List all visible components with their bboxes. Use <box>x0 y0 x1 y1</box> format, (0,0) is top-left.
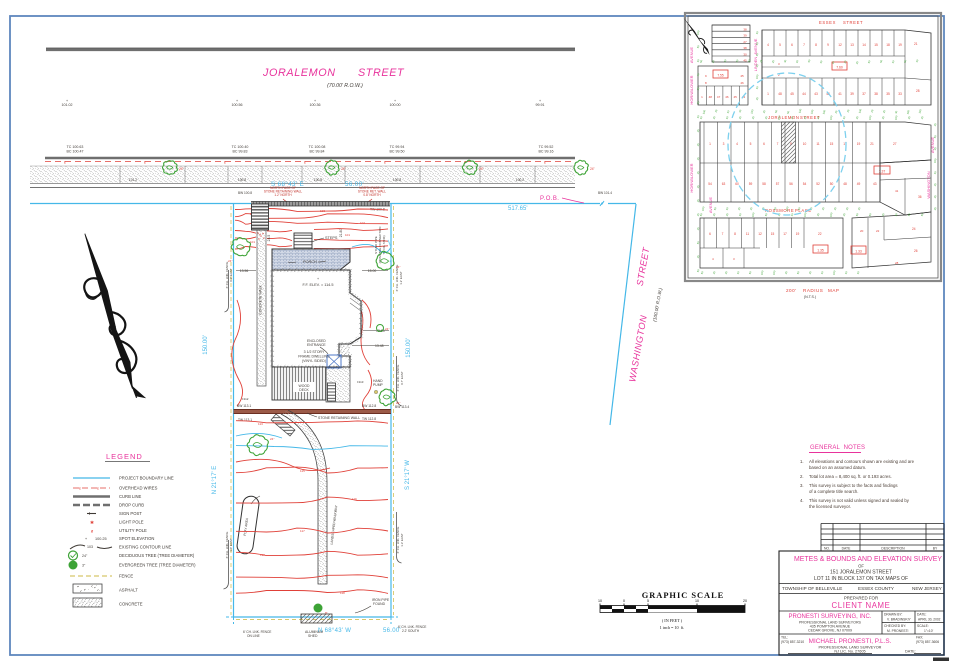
svg-text:HORNBLOWER: HORNBLOWER <box>689 163 694 192</box>
svg-text:BW 113.1: BW 113.1 <box>237 404 251 408</box>
svg-text:AVENUE: AVENUE <box>689 47 694 63</box>
svg-text:59: 59 <box>749 182 753 186</box>
svg-text:ESSEX: ESSEX <box>819 20 836 25</box>
svg-text:(70.00' R.O.W.): (70.00' R.O.W.) <box>327 83 363 89</box>
svg-text:ROSSMORE: ROSSMORE <box>765 208 794 213</box>
svg-text:15: 15 <box>830 142 834 146</box>
svg-text:22: 22 <box>818 232 822 236</box>
svg-text:4: 4 <box>767 43 769 47</box>
svg-text:100.00: 100.00 <box>390 103 401 107</box>
svg-text:46: 46 <box>740 81 744 85</box>
svg-text:PROJECT BOUNDARY LINE: PROJECT BOUNDARY LINE <box>119 476 174 481</box>
svg-text:52: 52 <box>816 182 820 186</box>
svg-text:116: 116 <box>352 497 357 501</box>
svg-text:41: 41 <box>838 92 842 96</box>
svg-text:27: 27 <box>743 40 747 44</box>
svg-text:100.56: 100.56 <box>232 103 243 107</box>
svg-text:LOT 11 IN BLOCK 137 ON TAX MAP: LOT 11 IN BLOCK 137 ON TAX MAPS OF <box>814 576 908 582</box>
svg-text:6: 6 <box>709 232 711 236</box>
svg-text:PUMP: PUMP <box>373 383 384 387</box>
svg-text:57: 57 <box>776 182 780 186</box>
svg-text:100.2: 100.2 <box>516 178 524 182</box>
svg-text:BY: BY <box>933 547 938 551</box>
svg-text:1.35: 1.35 <box>817 249 824 253</box>
svg-text:DRAWN BY:: DRAWN BY: <box>884 613 902 617</box>
svg-text:This survey is subject to the: This survey is subject to the facts and … <box>809 483 898 488</box>
svg-text:1.3' EAST: 1.3' EAST <box>400 533 404 547</box>
svg-text:19: 19 <box>898 43 902 47</box>
svg-text:19: 19 <box>796 232 800 236</box>
svg-text:PREPARED FOR: PREPARED FOR <box>844 596 878 601</box>
svg-text:24": 24" <box>590 167 595 171</box>
svg-text:48: 48 <box>778 92 782 96</box>
svg-text:24": 24" <box>385 327 389 331</box>
svg-text:ENTRANCE: ENTRANCE <box>307 343 326 347</box>
svg-text:63: 63 <box>722 182 726 186</box>
svg-text:5: 5 <box>647 599 649 603</box>
svg-text:5: 5 <box>779 43 781 47</box>
svg-text:18: 18 <box>886 43 890 47</box>
svg-text:8: 8 <box>734 232 736 236</box>
svg-text:E: E <box>304 161 306 165</box>
svg-text:S 21°17' W: S 21°17' W <box>405 460 411 490</box>
svg-text:100.8: 100.8 <box>393 178 401 182</box>
svg-text:SIGN POST: SIGN POST <box>119 511 142 516</box>
svg-text:WASHINGTON: WASHINGTON <box>926 171 931 198</box>
svg-text:of a complete title search.: of a complete title search. <box>809 489 859 494</box>
svg-text:GENERAL NOTES: GENERAL NOTES <box>810 445 865 451</box>
svg-text:56: 56 <box>789 182 793 186</box>
svg-text:·: · <box>84 588 85 593</box>
svg-text:BC 99.83: BC 99.83 <box>233 150 248 154</box>
svg-text:·: · <box>99 588 100 593</box>
svg-text:100.8: 100.8 <box>314 178 322 182</box>
svg-text:CEDAR GROVE, NJ 07009: CEDAR GROVE, NJ 07009 <box>808 629 852 633</box>
svg-text:BW 100.8: BW 100.8 <box>238 191 252 195</box>
svg-text:P.O.B.: P.O.B. <box>540 196 559 202</box>
svg-text:6: 6 <box>763 142 765 146</box>
svg-text:( IN FEET ): ( IN FEET ) <box>662 618 683 623</box>
svg-text:1: 1 <box>767 92 769 96</box>
svg-text:BW 112.8: BW 112.8 <box>362 404 376 408</box>
svg-text:115: 115 <box>300 469 305 473</box>
svg-text:NEW JERSEY: NEW JERSEY <box>912 586 942 591</box>
svg-text:JORALEMON: JORALEMON <box>262 67 336 79</box>
svg-text:CONCRETE WALK: CONCRETE WALK <box>259 285 263 315</box>
svg-text:30: 30 <box>743 52 747 56</box>
svg-text:15: 15 <box>874 43 878 47</box>
svg-text:E: E <box>144 161 146 165</box>
svg-text:·: · <box>88 587 89 592</box>
svg-text:BC 99.16: BC 99.16 <box>539 150 554 154</box>
svg-text:TC 99.94: TC 99.94 <box>390 145 405 149</box>
svg-text:TC 100.40: TC 100.40 <box>232 145 249 149</box>
svg-text:4.: 4. <box>800 498 804 503</box>
svg-text:N 21°17' E: N 21°17' E <box>212 466 218 495</box>
svg-text:TW 112.8: TW 112.8 <box>362 417 376 421</box>
svg-text:22: 22 <box>876 229 880 233</box>
svg-text:100.36: 100.36 <box>310 103 321 107</box>
svg-text:58: 58 <box>762 182 766 186</box>
svg-text:150.00': 150.00' <box>406 338 412 358</box>
svg-text:TC 99.52: TC 99.52 <box>539 145 554 149</box>
svg-text:2.2' SOUTH: 2.2' SOUTH <box>402 629 420 633</box>
svg-text:DATE: DATE <box>842 547 852 551</box>
svg-text:28: 28 <box>916 89 920 93</box>
svg-text:LEGEND: LEGEND <box>106 452 143 461</box>
svg-text:DESCRIPTION: DESCRIPTION <box>881 547 905 551</box>
svg-text:24": 24" <box>179 167 184 171</box>
svg-text:NO.: NO. <box>824 547 830 551</box>
svg-text:24": 24" <box>396 265 400 269</box>
svg-text:DATE:: DATE: <box>905 650 916 654</box>
svg-text:36: 36 <box>918 195 922 199</box>
svg-text:EVERGREEN TREE (TREE DIAMETER): EVERGREEN TREE (TREE DIAMETER) <box>119 563 196 568</box>
svg-text:FRAME DWELLING: FRAME DWELLING <box>298 355 330 359</box>
svg-text:E: E <box>224 161 226 165</box>
svg-text:All elevations and contours sh: All elevations and contours shown are ex… <box>809 459 915 464</box>
svg-text:STEPS: STEPS <box>325 236 338 240</box>
svg-text:SPOT ELEVATION: SPOT ELEVATION <box>119 536 154 541</box>
svg-text:10: 10 <box>695 599 699 603</box>
svg-text:101: 101 <box>345 233 350 237</box>
svg-text:3 1/2 STORY: 3 1/2 STORY <box>304 350 325 354</box>
svg-text:113: 113 <box>258 422 263 426</box>
svg-text:3: 3 <box>723 142 725 146</box>
svg-text:METES & BOUNDS AND ELEVATION S: METES & BOUNDS AND ELEVATION SURVEY <box>794 556 942 563</box>
svg-text:6: 6 <box>791 43 793 47</box>
svg-text:STONE RETAINING WALL: STONE RETAINING WALL <box>318 416 360 420</box>
svg-text:101.02: 101.02 <box>62 103 73 107</box>
svg-text:SCALE:: SCALE: <box>917 624 929 628</box>
svg-text:(973) 857-3210: (973) 857-3210 <box>781 640 804 644</box>
svg-text:100.8: 100.8 <box>238 178 246 182</box>
svg-text:BC 100.47: BC 100.47 <box>67 150 84 154</box>
svg-text:APRIL 30, 2002: APRIL 30, 2002 <box>918 618 941 622</box>
svg-text:ASPHALT: ASPHALT <box>119 588 138 593</box>
svg-text:OVERHEAD WIRES: OVERHEAD WIRES <box>119 486 158 491</box>
svg-text:41: 41 <box>895 189 899 193</box>
svg-text:24": 24" <box>396 401 400 405</box>
svg-text:24": 24" <box>228 259 232 263</box>
svg-text:49: 49 <box>857 182 861 186</box>
svg-text:the licensed surveyor.: the licensed surveyor. <box>809 504 851 509</box>
svg-text:14: 14 <box>862 43 866 47</box>
svg-text:RADIUS: RADIUS <box>803 288 823 293</box>
svg-text:151 JORALEMON STREET: 151 JORALEMON STREET <box>830 570 892 576</box>
svg-text:1.33: 1.33 <box>855 250 862 254</box>
svg-text:10: 10 <box>598 599 602 603</box>
svg-text:OF: OF <box>858 564 864 569</box>
svg-text:11: 11 <box>746 232 750 236</box>
svg-text:117: 117 <box>300 529 305 533</box>
svg-text:1 inch = 10 ft.: 1 inch = 10 ft. <box>660 625 685 630</box>
svg-text:47: 47 <box>717 95 721 99</box>
svg-text:ø: ø <box>91 528 94 533</box>
svg-text:24": 24" <box>341 167 346 171</box>
svg-text:0.8' NORTH: 0.8' NORTH <box>363 193 381 197</box>
svg-text:45: 45 <box>740 74 744 78</box>
svg-text:CHECKED BY:: CHECKED BY: <box>884 624 906 628</box>
svg-text:43: 43 <box>873 182 877 186</box>
svg-text:13: 13 <box>850 43 854 47</box>
svg-text:7.55: 7.55 <box>717 74 723 78</box>
svg-text:MICHAEL PRONESTI, P.L.S.: MICHAEL PRONESTI, P.L.S. <box>809 638 892 645</box>
svg-text:TC 100.08: TC 100.08 <box>309 145 326 149</box>
svg-text:+: + <box>66 99 68 103</box>
svg-text:(N.T.S.): (N.T.S.) <box>804 295 816 299</box>
svg-text:BC 99.50: BC 99.50 <box>390 150 405 154</box>
svg-text:BW 113.4: BW 113.4 <box>395 405 409 409</box>
svg-text:1: 1 <box>709 142 711 146</box>
svg-text:NJ LIC. No. 27605: NJ LIC. No. 27605 <box>834 650 865 654</box>
svg-text:ON LINE: ON LINE <box>247 634 260 638</box>
svg-text:UTILITY POLE: UTILITY POLE <box>119 528 147 533</box>
svg-text:9: 9 <box>827 43 829 47</box>
svg-text:48: 48 <box>709 95 713 99</box>
svg-text:✱: ✱ <box>90 520 94 525</box>
svg-text:FENCE: FENCE <box>119 574 133 579</box>
svg-text:15: 15 <box>771 232 775 236</box>
svg-text:118: 118 <box>340 591 345 595</box>
svg-text:24: 24 <box>912 227 916 231</box>
svg-text:This survey is not valid unles: This survey is not valid unless signed a… <box>809 498 910 503</box>
svg-text:60: 60 <box>735 182 739 186</box>
svg-text:20: 20 <box>860 229 864 233</box>
svg-text:0.7' EAST: 0.7' EAST <box>400 371 404 385</box>
svg-text:±113: ±113 <box>357 380 364 384</box>
svg-text:HORNBLOWER: HORNBLOWER <box>689 75 694 104</box>
svg-text:3.: 3. <box>800 483 804 488</box>
svg-text:48: 48 <box>843 182 847 186</box>
svg-text:17: 17 <box>783 232 787 236</box>
svg-text:(VINYL SIDED): (VINYL SIDED) <box>302 359 326 363</box>
svg-text:·: · <box>78 584 79 589</box>
svg-text:33: 33 <box>898 92 902 96</box>
svg-text:39: 39 <box>743 34 747 38</box>
svg-text:(973) 857-3606: (973) 857-3606 <box>916 640 939 644</box>
svg-text:7: 7 <box>722 232 724 236</box>
svg-text:38: 38 <box>743 28 747 32</box>
svg-text:11: 11 <box>816 142 820 146</box>
svg-text:based on an assumed datum.: based on an assumed datum. <box>809 465 866 470</box>
svg-text:19: 19 <box>857 142 861 146</box>
svg-text:7: 7 <box>803 43 805 47</box>
svg-text:28: 28 <box>895 261 899 265</box>
svg-text:STREET: STREET <box>843 20 863 25</box>
svg-text:E: E <box>79 486 81 490</box>
svg-text:24.5: 24.5 <box>267 235 271 242</box>
svg-text:0.3' EAST: 0.3' EAST <box>229 268 233 282</box>
svg-text:54: 54 <box>708 182 712 186</box>
svg-text:8: 8 <box>815 43 817 47</box>
svg-text:12: 12 <box>758 232 762 236</box>
svg-text:117: 117 <box>260 553 265 557</box>
svg-text:CONCRETE: CONCRETE <box>119 602 143 607</box>
svg-text:GRAPHIC SCALE: GRAPHIC SCALE <box>642 591 725 600</box>
svg-text:99.91: 99.91 <box>536 103 545 107</box>
svg-text:+: + <box>394 99 396 103</box>
svg-text:E: E <box>384 161 386 165</box>
svg-text:E: E <box>97 486 99 490</box>
svg-text:TC 100.63: TC 100.63 <box>67 145 84 149</box>
svg-text:AVENUE: AVENUE <box>708 197 713 213</box>
svg-text:DECIDUOUS TREE (TREE DIAMETER): DECIDUOUS TREE (TREE DIAMETER) <box>119 553 195 558</box>
svg-text:0: 0 <box>623 599 625 603</box>
svg-text:BW 101.4: BW 101.4 <box>598 191 612 195</box>
svg-text:44: 44 <box>802 92 806 96</box>
svg-text:517.65': 517.65' <box>508 206 528 212</box>
svg-text:DROP CURB: DROP CURB <box>119 503 144 508</box>
svg-text:TOWNSHIP OF BELLEVILLE: TOWNSHIP OF BELLEVILLE <box>782 586 842 591</box>
svg-text:13.56: 13.56 <box>240 269 249 273</box>
svg-text:100.25: 100.25 <box>95 537 107 541</box>
svg-text:Total lot area = 8,400 sq. ft.: Total lot area = 8,400 sq. ft. or 0.193 … <box>809 474 892 479</box>
svg-text:45: 45 <box>790 92 794 96</box>
svg-text:·: · <box>96 583 97 588</box>
svg-text:102: 102 <box>360 221 365 225</box>
svg-text:LIGHT POLE: LIGHT POLE <box>119 520 144 525</box>
svg-text:39: 39 <box>850 92 854 96</box>
svg-text:DATE:: DATE: <box>917 613 927 617</box>
svg-text:54: 54 <box>803 182 807 186</box>
svg-text:7.60: 7.60 <box>836 66 843 70</box>
svg-text:E: E <box>64 161 66 165</box>
svg-text:1.2' NORTH: 1.2' NORTH <box>274 193 292 197</box>
svg-text:21: 21 <box>870 142 874 146</box>
svg-text:SHED: SHED <box>308 634 318 638</box>
svg-text:V. BRADINSKIY: V. BRADINSKIY <box>887 618 911 622</box>
svg-text:26: 26 <box>914 249 918 253</box>
svg-text:7: 7 <box>777 142 779 146</box>
svg-text:20: 20 <box>743 599 747 603</box>
svg-text:4: 4 <box>736 142 738 146</box>
svg-text:21: 21 <box>914 42 918 46</box>
svg-text:EXISTING CONTOUR LINE: EXISTING CONTOUR LINE <box>119 545 171 550</box>
svg-text:103: 103 <box>320 209 325 213</box>
svg-text:1"=10': 1"=10' <box>924 629 934 633</box>
svg-text:5: 5 <box>750 142 752 146</box>
svg-text:PRONESTI SURVEYING, INC.: PRONESTI SURVEYING, INC. <box>789 614 872 620</box>
svg-text:+: + <box>236 99 238 103</box>
svg-text:43: 43 <box>814 92 818 96</box>
svg-text:46: 46 <box>725 95 729 99</box>
svg-text:E: E <box>544 161 546 165</box>
svg-text:1.: 1. <box>800 459 804 464</box>
svg-text:50: 50 <box>830 182 834 186</box>
svg-text:CURB LINE: CURB LINE <box>119 494 142 499</box>
svg-text:CLIENT NAME: CLIENT NAME <box>832 601 891 610</box>
svg-text:101.2: 101.2 <box>129 178 137 182</box>
svg-text:JORALEMON: JORALEMON <box>768 115 799 120</box>
svg-text:±112: ±112 <box>242 397 249 401</box>
svg-text:24": 24" <box>82 554 88 558</box>
svg-text:TEL:: TEL: <box>781 636 788 640</box>
svg-text:24": 24" <box>270 437 274 441</box>
svg-text:ESSEX COUNTY: ESSEX COUNTY <box>858 586 894 591</box>
svg-text:FAX:: FAX: <box>916 636 923 640</box>
svg-text:PORCH: PORCH <box>303 260 317 264</box>
svg-text:+: + <box>317 277 319 281</box>
svg-text:45: 45 <box>734 95 738 99</box>
svg-text:·: · <box>92 585 93 590</box>
svg-text:45: 45 <box>743 59 747 63</box>
svg-text:15.00: 15.00 <box>368 269 377 273</box>
svg-text:1.0' EAST: 1.0' EAST <box>229 538 233 552</box>
svg-text:21.80: 21.80 <box>339 229 343 238</box>
svg-text:+: + <box>539 99 541 103</box>
svg-text:12: 12 <box>838 43 842 47</box>
svg-text:200': 200' <box>786 288 797 293</box>
svg-text:103: 103 <box>87 545 93 549</box>
svg-text:38: 38 <box>874 92 878 96</box>
svg-text:1.2' EAST: 1.2' EAST <box>399 271 403 285</box>
svg-text:37: 37 <box>862 92 866 96</box>
svg-text:150.00': 150.00' <box>203 335 209 355</box>
svg-text:F.F. ELEV. = 114.5: F.F. ELEV. = 114.5 <box>303 283 334 287</box>
svg-text:BC 99.84: BC 99.84 <box>310 150 325 154</box>
svg-text:MAP: MAP <box>828 288 839 293</box>
svg-text:FOUND: FOUND <box>373 602 386 606</box>
svg-text:35: 35 <box>886 92 890 96</box>
svg-text:38: 38 <box>743 46 747 50</box>
svg-text:27: 27 <box>893 142 897 146</box>
svg-text:2.: 2. <box>800 474 804 479</box>
svg-text:+: + <box>314 99 316 103</box>
svg-text:10: 10 <box>803 142 807 146</box>
svg-text:13.48: 13.48 <box>375 344 384 348</box>
svg-text:24": 24" <box>479 167 484 171</box>
svg-text:DECK: DECK <box>299 388 309 392</box>
svg-text:M. PRONESTI: M. PRONESTI <box>887 629 909 633</box>
svg-text:STREET: STREET <box>358 67 405 79</box>
